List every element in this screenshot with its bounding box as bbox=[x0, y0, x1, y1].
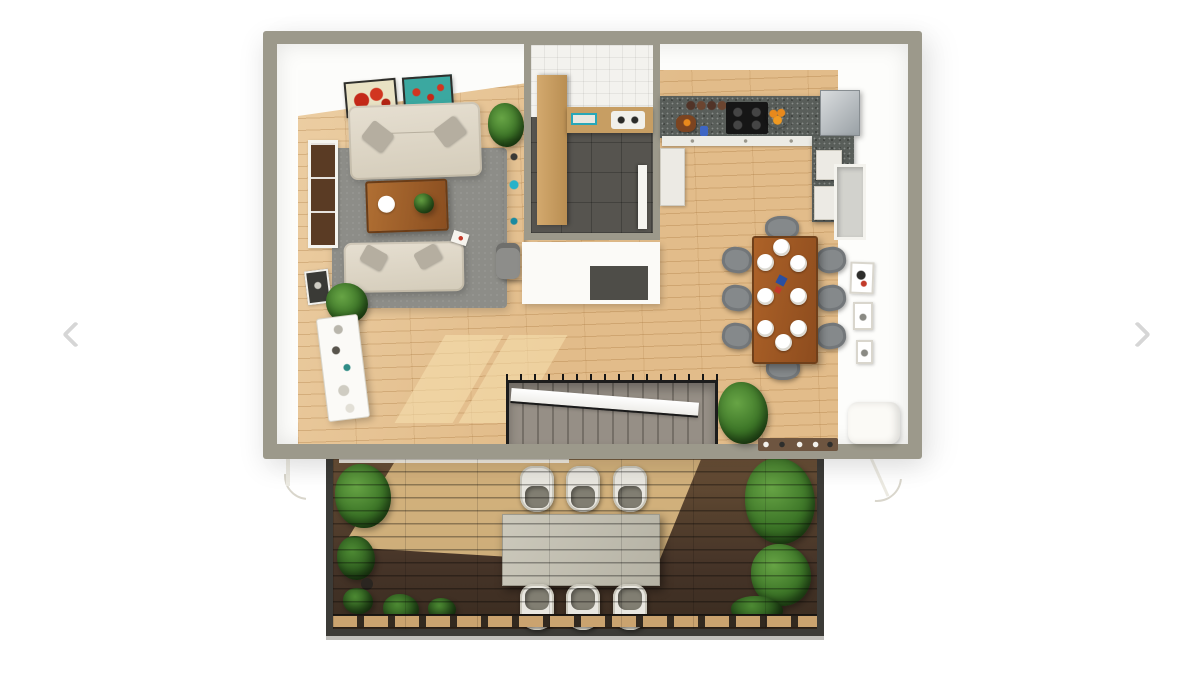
bathroom-vestibule-wall bbox=[522, 242, 660, 304]
chair-cushion bbox=[571, 486, 595, 508]
plate bbox=[775, 334, 792, 351]
deck-palm-plant bbox=[745, 458, 815, 544]
plate bbox=[773, 239, 790, 256]
kitchen-cabinet-fronts bbox=[662, 136, 814, 146]
wall-frame bbox=[849, 262, 874, 295]
chair-cushion bbox=[618, 588, 642, 610]
throw-pillow bbox=[413, 243, 443, 270]
towel-shelf bbox=[571, 113, 597, 125]
throw-pillow bbox=[361, 120, 395, 153]
deck-shadow bbox=[326, 636, 824, 640]
cutting-board bbox=[676, 115, 696, 132]
freezer-unit bbox=[660, 148, 685, 206]
dining-window bbox=[834, 164, 866, 240]
shoe-rack bbox=[758, 438, 838, 451]
bathroom-sink bbox=[611, 111, 645, 129]
waste-bin bbox=[496, 243, 520, 279]
chair-cushion bbox=[618, 486, 642, 508]
outdoor-chair bbox=[613, 466, 647, 512]
kitchen-utensil bbox=[700, 126, 708, 136]
stair-railing-panel bbox=[510, 388, 699, 418]
deck-area bbox=[326, 456, 824, 636]
plate bbox=[790, 320, 807, 337]
outdoor-chair bbox=[566, 466, 600, 512]
bathroom bbox=[524, 38, 660, 240]
carousel-prev-button[interactable] bbox=[58, 313, 92, 357]
plate bbox=[757, 288, 774, 305]
wall-frame bbox=[853, 302, 873, 330]
plate bbox=[757, 254, 774, 271]
deck-edge-slats bbox=[333, 614, 817, 627]
fruit-bowl bbox=[766, 105, 789, 128]
living-room-window bbox=[308, 140, 338, 248]
wall-frame bbox=[856, 340, 873, 364]
spice-jars bbox=[686, 99, 726, 112]
sofa bbox=[348, 102, 483, 181]
plate bbox=[790, 255, 807, 272]
roller-blind bbox=[848, 402, 900, 444]
cooktop bbox=[726, 102, 768, 134]
bathroom-door bbox=[638, 165, 647, 229]
chevron-right-icon bbox=[1124, 321, 1151, 348]
deck-bush-plant bbox=[335, 464, 391, 528]
image-carousel-viewer bbox=[0, 0, 1200, 674]
table-plant bbox=[414, 193, 435, 214]
sofa bbox=[344, 241, 465, 293]
deck-small-plant bbox=[343, 588, 373, 614]
carousel-next-button[interactable] bbox=[1120, 313, 1154, 357]
plate bbox=[757, 320, 774, 337]
bathroom-wardrobe bbox=[537, 75, 567, 225]
chair-cushion bbox=[525, 486, 549, 508]
doorway-opening bbox=[590, 266, 648, 300]
bathroom-vanity bbox=[567, 107, 653, 133]
coffee-table bbox=[365, 179, 449, 234]
throw-pillow bbox=[433, 115, 467, 148]
chair-cushion bbox=[571, 588, 595, 610]
main-floor-plan bbox=[263, 31, 922, 459]
chevron-left-icon bbox=[62, 321, 89, 348]
throw-pillow bbox=[359, 244, 389, 271]
outdoor-chair bbox=[520, 466, 554, 512]
plate bbox=[790, 288, 807, 305]
deck-bush-plant bbox=[337, 536, 375, 580]
stair-plant bbox=[718, 382, 768, 444]
serving-tray bbox=[378, 195, 396, 213]
chair-cushion bbox=[525, 588, 549, 610]
staircase bbox=[506, 380, 718, 444]
refrigerator bbox=[820, 90, 860, 136]
outdoor-dining-table bbox=[502, 514, 660, 586]
